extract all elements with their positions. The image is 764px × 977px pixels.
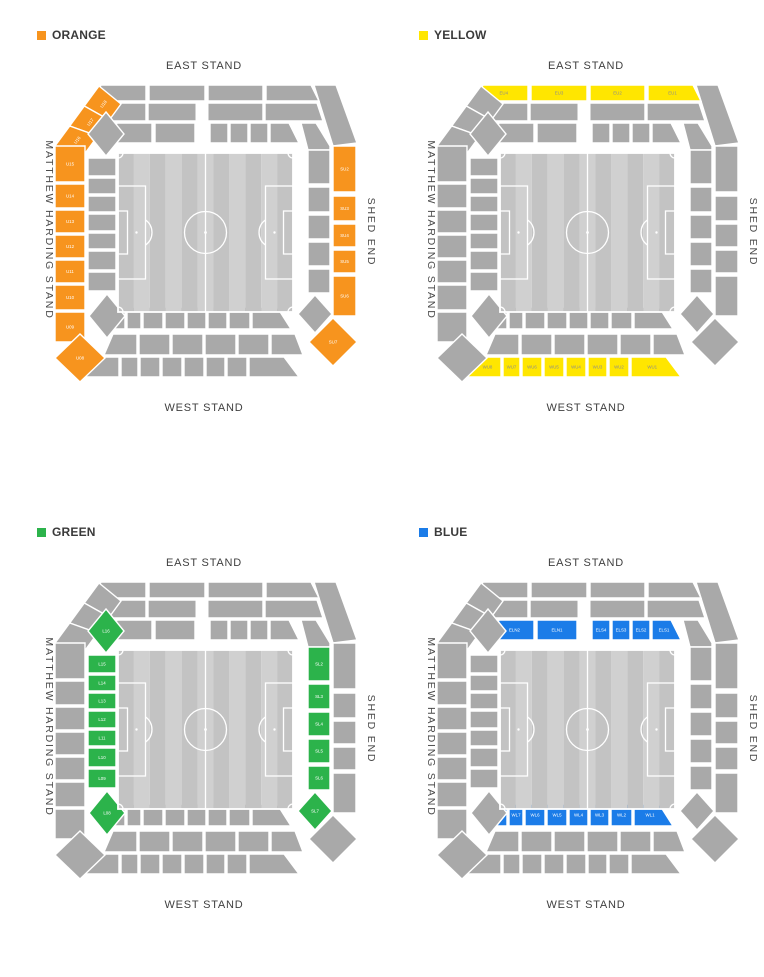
section-label: WU6: [527, 365, 537, 370]
section-AB3: [140, 854, 160, 874]
stadium-map-orange: ORANGE U18U17U16U15U14U13U12U11U10U09U08…: [0, 0, 382, 420]
legend-color-swatch: [37, 31, 46, 40]
section-BT3: [207, 103, 263, 121]
penalty-spot: [273, 231, 275, 233]
section-BB6: [653, 334, 685, 355]
section-AL1: [55, 643, 85, 679]
section-AR5: [333, 773, 356, 813]
section-AT3: [590, 582, 645, 598]
section-CL1: [88, 158, 116, 176]
section-label: ELN2: [509, 628, 521, 633]
section-BB5: [620, 831, 651, 852]
section-BB3: [554, 334, 585, 355]
section-label: L15: [98, 662, 106, 667]
section-BB1: [486, 831, 519, 852]
section-label: WU3: [593, 365, 603, 370]
pitch-stripe: [118, 650, 134, 809]
section-AB8: [249, 854, 299, 874]
section-AT4: [266, 582, 319, 598]
section-AB7: [227, 854, 247, 874]
section-AR1: [715, 643, 738, 689]
section-AR1: [333, 643, 356, 689]
penalty-spot: [273, 728, 275, 730]
pitch-stripe: [548, 650, 564, 809]
legend-green: GREEN: [37, 525, 96, 539]
section-label: SL7: [311, 809, 319, 814]
section-BT3: [589, 600, 645, 618]
section-label: WL4: [574, 813, 584, 818]
section-label: SU4: [340, 233, 349, 238]
section-CL7: [470, 272, 498, 291]
section-AR4: [715, 747, 738, 770]
west-stand-label: WEST STAND: [164, 899, 243, 911]
section-AL4: [437, 235, 467, 258]
section-BB1: [104, 831, 137, 852]
stadium-diagram-yellow: EU4EU3EU2EU1WU8WU7WU6WU5WU4WU3WU2WU1EAST…: [382, 0, 764, 420]
legend-label: ORANGE: [52, 28, 106, 42]
section-AB2: [503, 854, 520, 874]
section-AB6: [206, 854, 225, 874]
section-label: L08: [103, 811, 111, 816]
section-CT6: [270, 123, 299, 143]
pitch-stripe: [166, 650, 182, 809]
section-CL1: [470, 158, 498, 176]
section-AR3: [715, 721, 738, 744]
section-label: ELS3: [616, 628, 627, 633]
pitch-stripe: [500, 153, 516, 312]
section-CR3: [308, 215, 330, 239]
section-AB6: [588, 854, 607, 874]
section-AB8: [631, 854, 681, 874]
section-BB4: [205, 831, 236, 852]
section-AT2: [531, 582, 587, 598]
section-CR4: [308, 242, 330, 266]
section-label: ELS4: [596, 628, 607, 633]
section-label: SU7: [329, 340, 338, 345]
matthew-harding-stand-label: MATTHEW HARDING STAND: [425, 637, 437, 816]
pitch-stripe: [659, 153, 675, 312]
center-spot: [204, 728, 207, 731]
pitch-stripe: [611, 650, 627, 809]
section-CL3: [470, 693, 498, 709]
section-label: ELS1: [659, 628, 670, 633]
section-AB5: [184, 357, 204, 377]
section-label: WL1: [645, 813, 655, 818]
penalty-spot: [517, 728, 519, 730]
shed-end-label: SHED END: [747, 198, 759, 267]
section-CR4: [690, 242, 712, 266]
section-AR5: [715, 773, 738, 813]
section-BB1: [104, 334, 137, 355]
section-AL3: [437, 707, 467, 730]
section-AB5: [566, 854, 586, 874]
section-CTRW: [683, 620, 712, 647]
section-label: WU2: [614, 365, 624, 370]
section-label: EU3: [555, 91, 564, 96]
section-AL3: [437, 210, 467, 233]
section-label: U12: [66, 244, 75, 249]
section-BB2: [139, 334, 170, 355]
section-CL7: [88, 272, 116, 291]
section-BB4: [587, 334, 618, 355]
section-CL4: [88, 214, 116, 231]
section-AR4: [715, 250, 738, 273]
section-label: WU1: [647, 365, 657, 370]
section-AB6: [206, 357, 225, 377]
section-BB1: [486, 334, 519, 355]
section-BB5: [238, 334, 269, 355]
section-AB2: [121, 357, 138, 377]
pitch-stripe: [166, 153, 182, 312]
legend-blue: BLUE: [419, 525, 467, 539]
section-label: U08: [76, 356, 85, 361]
tunnel-gap: [578, 102, 591, 154]
west-stand-label: WEST STAND: [546, 402, 625, 414]
section-CT4: [230, 620, 248, 640]
section-CT6: [270, 620, 299, 640]
section-label: U14: [66, 194, 75, 199]
section-CT3: [210, 620, 228, 640]
section-label: L13: [98, 699, 106, 704]
section-BB3: [172, 334, 203, 355]
section-label: U13: [66, 219, 75, 224]
section-CT3: [210, 123, 228, 143]
section-BT4: [265, 600, 323, 618]
center-spot: [586, 728, 589, 731]
shed-end-label: SHED END: [365, 198, 377, 267]
stadium-map-blue: BLUE ELN2ELN1ELS4ELS3ELS2ELS1WL8WL7WL6WL…: [382, 497, 764, 917]
section-BB4: [205, 334, 236, 355]
section-CTRW: [683, 123, 712, 150]
section-CR2: [690, 684, 712, 709]
section-AL4: [437, 732, 467, 755]
section-BB6: [271, 334, 303, 355]
section-AL4: [55, 732, 85, 755]
section-BT3: [589, 103, 645, 121]
section-CL2: [88, 178, 116, 194]
stadium-diagram-blue: ELN2ELN1ELS4ELS3ELS2ELS1WL8WL7WL6WL5WL4W…: [382, 497, 764, 917]
section-CR3: [690, 712, 712, 736]
section-CR2: [690, 187, 712, 212]
section-label: U11: [66, 269, 74, 274]
section-AB4: [162, 854, 182, 874]
section-CL6: [88, 251, 116, 270]
section-AL6: [437, 285, 467, 310]
shed-end-label: SHED END: [747, 695, 759, 764]
section-AL6: [437, 782, 467, 807]
penalty-spot: [517, 231, 519, 233]
section-label: ELS2: [636, 628, 647, 633]
section-AT3: [208, 582, 263, 598]
section-AT3: [208, 85, 263, 101]
section-CR5: [690, 766, 712, 790]
pitch-stripe: [277, 153, 293, 312]
west-stand-label: WEST STAND: [164, 402, 243, 414]
pitch: [500, 650, 675, 809]
section-CT2: [537, 123, 577, 143]
section-AL1: [437, 643, 467, 679]
section-label: WU8: [483, 365, 493, 370]
section-AL2: [437, 681, 467, 705]
section-label: L16: [102, 629, 110, 634]
section-BB2: [521, 334, 552, 355]
section-CT5: [250, 123, 268, 143]
legend-color-swatch: [419, 528, 428, 537]
section-BB4: [587, 831, 618, 852]
section-CL5: [470, 233, 498, 249]
section-CL2: [470, 178, 498, 194]
section-BT3: [207, 600, 263, 618]
pitch-stripe: [229, 650, 245, 809]
section-CTRW: [301, 123, 330, 150]
section-label: L10: [98, 755, 106, 760]
section-BB2: [521, 831, 552, 852]
section-AT2: [149, 582, 205, 598]
section-AL2: [437, 184, 467, 208]
section-CL3: [88, 196, 116, 212]
west-stand-label: WEST STAND: [546, 899, 625, 911]
section-AL5: [437, 260, 467, 283]
tunnel-gap: [196, 102, 209, 154]
section-AB7: [609, 854, 629, 874]
section-CR5: [690, 269, 712, 293]
section-AB7: [227, 357, 247, 377]
section-label: SU2: [340, 167, 349, 172]
stadium-diagram-orange: U18U17U16U15U14U13U12U11U10U09U08SU2SU3S…: [0, 0, 382, 420]
section-AL3: [55, 707, 85, 730]
section-AR1: [715, 146, 738, 192]
pitch: [118, 650, 293, 809]
section-CT6: [652, 123, 681, 143]
shed-end-label: SHED END: [365, 695, 377, 764]
section-AB4: [544, 854, 564, 874]
section-AL5: [437, 757, 467, 780]
penalty-spot: [135, 728, 137, 730]
matthew-harding-stand-label: MATTHEW HARDING STAND: [43, 637, 55, 816]
pitch-stripe: [229, 153, 245, 312]
section-label: U15: [66, 162, 75, 167]
section-BB3: [554, 831, 585, 852]
section-label: WU7: [507, 365, 517, 370]
legend-color-swatch: [419, 31, 428, 40]
section-label: WL6: [530, 813, 540, 818]
section-BB3: [172, 831, 203, 852]
section-CL2: [470, 675, 498, 691]
east-stand-label: EAST STAND: [548, 557, 624, 569]
pitch-stripe: [118, 153, 134, 312]
section-CL4: [470, 214, 498, 231]
section-AB5: [184, 854, 204, 874]
east-stand-label: EAST STAND: [548, 60, 624, 72]
section-CT3: [592, 123, 610, 143]
section-AT4: [648, 582, 701, 598]
penalty-spot: [655, 231, 657, 233]
section-label: EU2: [613, 91, 622, 96]
section-BB6: [271, 831, 303, 852]
section-AB3: [522, 854, 542, 874]
section-label: WU4: [571, 365, 581, 370]
section-label: SU6: [340, 294, 349, 299]
section-CR1: [690, 647, 712, 681]
section-CR5: [308, 269, 330, 293]
penalty-spot: [655, 728, 657, 730]
section-AR2: [333, 693, 356, 718]
pitch-stripe: [611, 153, 627, 312]
section-BB5: [620, 334, 651, 355]
section-label: SL5: [315, 749, 323, 754]
section-AB8: [249, 357, 299, 377]
section-BT4: [265, 103, 323, 121]
section-CL5: [88, 233, 116, 249]
legend-yellow: YELLOW: [419, 28, 487, 42]
section-CR3: [690, 215, 712, 239]
section-AR5: [715, 276, 738, 316]
stadium-map-green: GREEN L16L15L14L13L12L11L10L09L08SL2SL3S…: [0, 497, 382, 917]
section-AL2: [55, 681, 85, 705]
section-label: SU3: [340, 206, 349, 211]
east-stand-label: EAST STAND: [166, 557, 242, 569]
section-CT2: [155, 123, 195, 143]
section-AL5: [55, 757, 85, 780]
section-CL5: [470, 730, 498, 746]
section-label: WU5: [549, 365, 559, 370]
section-label: SL3: [315, 694, 323, 699]
section-CR1: [308, 150, 330, 184]
section-AB3: [140, 357, 160, 377]
section-CT2: [155, 620, 195, 640]
section-AR3: [333, 721, 356, 744]
penalty-spot: [135, 231, 137, 233]
pitch-stripe: [277, 650, 293, 809]
section-CR4: [690, 739, 712, 763]
section-CL4: [470, 711, 498, 728]
section-CL6: [470, 251, 498, 270]
tunnel-gap: [578, 599, 591, 651]
section-CL3: [470, 196, 498, 212]
section-label: WL3: [595, 813, 605, 818]
section-CR2: [308, 187, 330, 212]
section-label: L14: [98, 681, 106, 686]
center-spot: [586, 231, 589, 234]
section-label: L11: [99, 736, 107, 741]
section-label: EU1: [668, 91, 677, 96]
pitch-stripe: [659, 650, 675, 809]
section-label: SL6: [315, 776, 323, 781]
section-BB2: [139, 831, 170, 852]
pitch: [500, 153, 675, 312]
section-AB2: [121, 854, 138, 874]
section-AR4: [333, 747, 356, 770]
matthew-harding-stand-label: MATTHEW HARDING STAND: [43, 140, 55, 319]
section-label: SL2: [315, 662, 323, 667]
section-AR2: [715, 693, 738, 718]
page: ORANGE U18U17U16U15U14U13U12U11U10U09U08…: [0, 0, 764, 977]
section-CL7: [470, 769, 498, 788]
section-CT5: [632, 123, 650, 143]
tunnel-gap: [196, 599, 209, 651]
pitch: [118, 153, 293, 312]
section-AL1: [437, 146, 467, 182]
legend-color-swatch: [37, 528, 46, 537]
section-AR2: [715, 196, 738, 221]
section-CT5: [250, 620, 268, 640]
legend-orange: ORANGE: [37, 28, 106, 42]
legend-label: GREEN: [52, 525, 96, 539]
matthew-harding-stand-label: MATTHEW HARDING STAND: [425, 140, 437, 319]
section-BT4: [647, 103, 705, 121]
section-CT4: [612, 123, 630, 143]
section-label: U10: [66, 295, 75, 300]
section-label: WL5: [552, 813, 562, 818]
section-CL6: [470, 748, 498, 767]
section-label: ELN1: [552, 628, 564, 633]
section-label: SU5: [340, 259, 349, 264]
section-AT4: [266, 85, 319, 101]
section-CT4: [230, 123, 248, 143]
section-AL6: [55, 782, 85, 807]
center-spot: [204, 231, 207, 234]
legend-label: BLUE: [434, 525, 467, 539]
section-AT2: [149, 85, 205, 101]
section-label: WL7: [511, 813, 521, 818]
pitch-stripe: [548, 153, 564, 312]
section-label: EU4: [499, 91, 508, 96]
stadium-diagram-green: L16L15L14L13L12L11L10L09L08SL2SL3SL4SL5S…: [0, 497, 382, 917]
section-label: L09: [98, 776, 106, 781]
section-AR3: [715, 224, 738, 247]
legend-label: YELLOW: [434, 28, 487, 42]
section-AB4: [162, 357, 182, 377]
section-CL1: [470, 655, 498, 673]
pitch-stripe: [500, 650, 516, 809]
east-stand-label: EAST STAND: [166, 60, 242, 72]
section-CTRW: [301, 620, 330, 647]
section-BB6: [653, 831, 685, 852]
section-label: WL2: [617, 813, 627, 818]
stadium-map-yellow: YELLOW EU4EU3EU2EU1WU8WU7WU6WU5WU4WU3WU2…: [382, 0, 764, 420]
section-BT4: [647, 600, 705, 618]
section-label: L12: [98, 717, 106, 722]
section-CR1: [690, 150, 712, 184]
section-label: U09: [66, 325, 75, 330]
section-BB5: [238, 831, 269, 852]
section-label: SL4: [315, 722, 323, 727]
